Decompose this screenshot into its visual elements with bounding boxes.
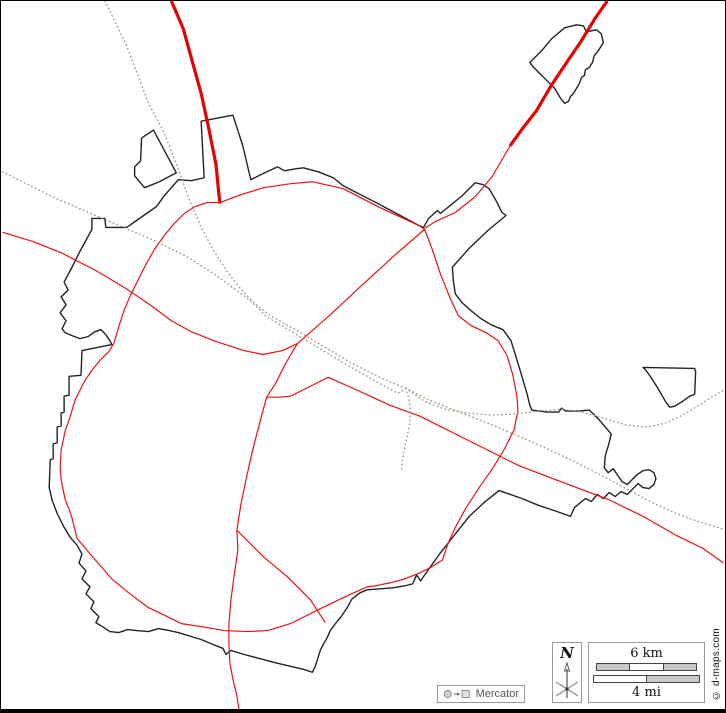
north-label: N bbox=[560, 646, 574, 661]
map-canvas bbox=[1, 1, 725, 709]
scale-bar-segment bbox=[597, 664, 630, 670]
railway-east-upper bbox=[406, 388, 724, 427]
railway-west bbox=[3, 172, 406, 393]
road-southeast-diagonal bbox=[267, 377, 724, 563]
scale-bar-segment bbox=[594, 676, 647, 682]
scale-bar-segment bbox=[630, 664, 663, 670]
east-exclave-outline bbox=[643, 367, 696, 407]
north-compass-icon bbox=[554, 661, 580, 699]
scale-bar-mi bbox=[593, 675, 700, 683]
copyright-watermark: © d-maps.com bbox=[711, 628, 722, 700]
scale-bar-segment bbox=[664, 664, 696, 670]
railway-southeast bbox=[406, 388, 724, 529]
road-diagonal-centre bbox=[297, 229, 424, 343]
scale-bar-legend: 6 km 4 mi bbox=[588, 642, 705, 703]
road-south-spur bbox=[237, 530, 325, 622]
railway-south-branch bbox=[402, 388, 411, 471]
globe-circle-icon bbox=[444, 690, 451, 697]
motorway-northeast bbox=[510, 1, 607, 146]
projected-square-icon bbox=[462, 690, 469, 697]
road-northeast-link bbox=[425, 146, 510, 228]
scale-bar-km bbox=[596, 663, 697, 671]
road-west bbox=[3, 232, 298, 354]
scale-km-label: 6 km bbox=[630, 647, 663, 660]
road-south bbox=[229, 344, 298, 709]
projection-legend: Mercator bbox=[437, 685, 525, 703]
ring-road bbox=[60, 182, 518, 632]
north-arrow-legend: N bbox=[552, 642, 582, 703]
map-frame: Mercator N 6 km 4 mi © d-maps.com bbox=[0, 0, 726, 713]
arrow-head-icon bbox=[457, 692, 460, 695]
scale-mi-label: 4 mi bbox=[632, 686, 661, 699]
projection-name: Mercator bbox=[476, 689, 519, 700]
city-boundary-outline bbox=[49, 115, 656, 672]
northwest-exclave-outline bbox=[135, 130, 177, 188]
projection-transform-icon bbox=[443, 688, 472, 700]
scale-bar-segment bbox=[647, 676, 699, 682]
motorway-north bbox=[171, 1, 220, 204]
